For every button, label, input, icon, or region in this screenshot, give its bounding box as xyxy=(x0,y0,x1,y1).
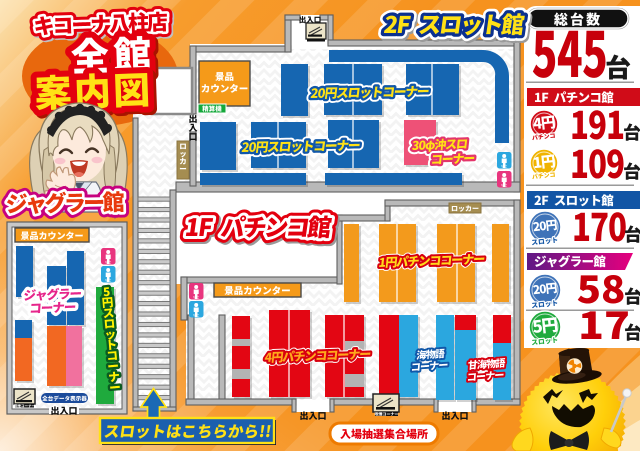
svg-text:WC: WC xyxy=(105,279,111,283)
svg-text:WC: WC xyxy=(105,261,111,265)
svg-text:WC: WC xyxy=(193,314,199,318)
svg-text:WC: WC xyxy=(193,296,199,300)
svg-text:WC: WC xyxy=(501,184,507,188)
svg-text:WC: WC xyxy=(501,165,507,169)
